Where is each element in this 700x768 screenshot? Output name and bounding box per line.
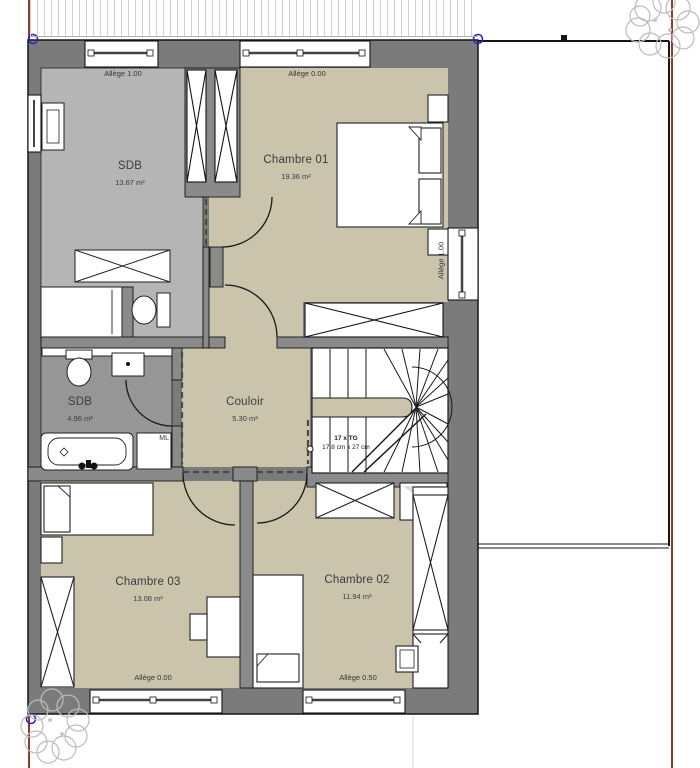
- room-name-sdb-small: SDB: [45, 396, 115, 408]
- window-bottom-chambre02: [303, 690, 405, 713]
- window-top-chambre01: [240, 41, 370, 67]
- roof-hatch-strip: [30, 0, 478, 37]
- window-right-chambre01: [448, 228, 478, 300]
- window-bottom-chambre03: [90, 690, 222, 713]
- wall-couloir-bottom-mid: [233, 467, 257, 481]
- bathtub: [41, 433, 133, 470]
- wall-door-stub: [210, 247, 223, 287]
- partition-stub: [122, 287, 133, 337]
- window-top-sdb: [85, 41, 158, 67]
- wardrobe-chambre01: [305, 303, 443, 337]
- room-name-couloir: Couloir: [195, 396, 295, 408]
- room-name-sdb-large: SDB: [95, 160, 165, 172]
- chair: [190, 614, 207, 640]
- stair-count-label: 17 x TG: [316, 435, 376, 442]
- room-area-chambre02: 11.94 m²: [307, 592, 407, 601]
- room-area-sdb-large: 13.67 m²: [95, 178, 165, 187]
- tree-sketch-top-right: [626, 0, 699, 58]
- wall-sdb-small-right-upper: [172, 348, 182, 380]
- washing-machine-label: ML: [149, 435, 169, 442]
- boundary-point-marker: [561, 35, 567, 41]
- floor-plan-drawing: [0, 0, 700, 768]
- room-name-chambre03: Chambre 03: [98, 576, 198, 588]
- wall-couloir-top-left: [209, 337, 225, 348]
- wall-sdb-large-bottom: [41, 337, 203, 348]
- small-cabinet: [396, 646, 418, 672]
- wardrobe-crossed: [316, 483, 394, 518]
- sill-label-top-left: Allège 1.00: [88, 69, 158, 78]
- washbasin: [112, 353, 144, 376]
- floor-plan-page: Allège 1.00 Allège 0.00 Allège 1.00 Allè…: [0, 0, 700, 768]
- sill-label-bottom-right: Allège 0.50: [323, 673, 393, 682]
- sill-label-right: Allège 1.00: [437, 226, 446, 296]
- room-area-couloir: 5.30 m²: [195, 414, 295, 423]
- wall-sdb-right: [203, 247, 209, 348]
- sill-label-top-right: Allège 0.00: [272, 69, 342, 78]
- vanity-crossed: [75, 250, 170, 282]
- shelf: [42, 348, 172, 356]
- wall-couloir-top-right: [277, 337, 448, 348]
- nightstand: [428, 95, 448, 122]
- wardrobe-crossed: [41, 577, 74, 687]
- terrace-outline: [478, 41, 669, 548]
- toilet-sdb-small: [66, 350, 92, 386]
- room-area-chambre01: 19.36 m²: [246, 172, 346, 181]
- pillow: [419, 128, 441, 173]
- room-area-chambre03: 13.08 m²: [98, 594, 198, 603]
- room-name-chambre02: Chambre 02: [307, 574, 407, 586]
- stair-spine: [312, 398, 412, 417]
- desk: [207, 597, 240, 657]
- window-left-sdb: [28, 95, 41, 152]
- toilet-sdb-large: [132, 293, 170, 327]
- sill-label-bottom-left: Allège 0.00: [118, 673, 188, 682]
- room-area-sdb-small: 4.96 m²: [45, 414, 115, 423]
- pillow: [419, 179, 441, 224]
- room-name-chambre01: Chambre 01: [246, 154, 346, 166]
- nightstand: [41, 537, 62, 563]
- staircase: [307, 348, 452, 473]
- stair-step-label: 17,8 cm x 27 cm: [303, 444, 389, 451]
- wall-chambre03-02: [240, 481, 253, 688]
- shower: [41, 287, 122, 337]
- wall-sdb-small-right-lower: [172, 426, 182, 471]
